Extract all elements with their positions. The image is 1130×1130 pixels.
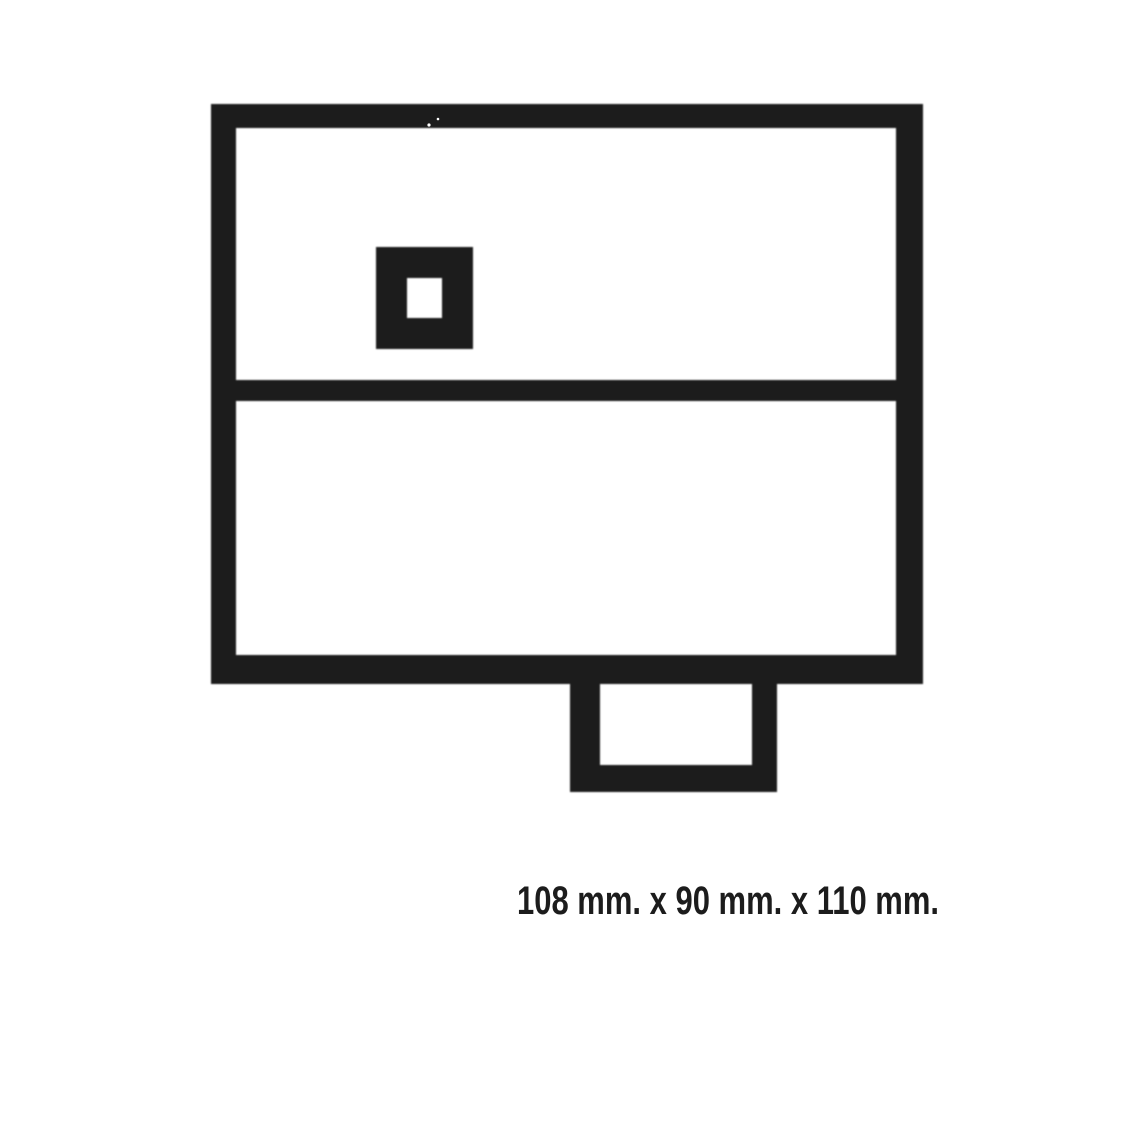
svg-text:108 mm. x 90 mm. x 110 mm.: 108 mm. x 90 mm. x 110 mm. [517, 879, 939, 923]
